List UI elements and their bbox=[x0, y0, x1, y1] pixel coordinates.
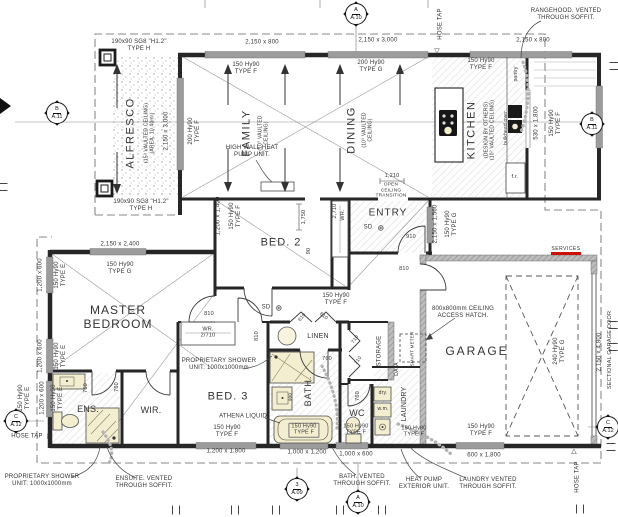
sink-icon bbox=[444, 127, 452, 135]
plan-label: ATHENA LIQUID bbox=[219, 414, 267, 421]
plan-label: 150 Hy90 TYPE F bbox=[213, 425, 240, 439]
section-marker-bubble: BA.11 bbox=[46, 102, 68, 124]
section-marker: BA.11 bbox=[44, 100, 70, 126]
oven-sink-icon bbox=[512, 124, 518, 130]
room-label-laundry: LAUNDRY bbox=[401, 387, 409, 422]
match-line-tick bbox=[231, 506, 239, 515]
section-marker-bubble: AA.10 bbox=[345, 3, 367, 25]
plan-label: 2,150 x 2,400 bbox=[101, 242, 140, 249]
plan-label: 1,200 x 600 bbox=[38, 339, 45, 373]
plan-label: HEAT PUMP EXTERIOR UNIT. bbox=[399, 477, 449, 491]
match-line-tick bbox=[336, 506, 344, 515]
plan-label: 1,750 bbox=[301, 210, 307, 225]
plan-label: 150 Hy90 TYPE G bbox=[106, 262, 133, 276]
plan-label: 1,000 x 600 bbox=[339, 452, 373, 459]
plan-label: pantry bbox=[514, 66, 520, 81]
plan-label: 760 bbox=[114, 382, 120, 392]
plan-label: ▽ bbox=[434, 48, 440, 56]
plan-label: 1,200 x 600 bbox=[40, 381, 47, 415]
plan-label: 150 Hy90 TYPE F bbox=[343, 424, 368, 437]
match-line-tick bbox=[607, 443, 616, 451]
plan-label: RANGEHOOD. VENTED THROUGH SOFFIT. bbox=[531, 8, 601, 22]
plan-label: 150 Hy90 TYPE E bbox=[54, 342, 68, 369]
plan-label: 200 Hy90 TYPE G bbox=[357, 60, 384, 74]
match-line-tick bbox=[576, 505, 584, 514]
plan-label: HOSE TAP bbox=[575, 461, 582, 492]
plan-label: (10° VAULTED CEILING) bbox=[362, 112, 374, 147]
plan-label: 150 Hy90 TYPE E bbox=[51, 384, 65, 411]
plan-label: 810 bbox=[204, 311, 214, 317]
match-line-tick bbox=[610, 62, 618, 70]
plan-label: SMART METER bbox=[409, 332, 414, 367]
match-line-tick bbox=[609, 321, 618, 329]
section-marker: CA.12 bbox=[3, 408, 29, 434]
section-marker: AA.10 bbox=[343, 1, 369, 27]
plan-label: 150 Hy90 TYPE F bbox=[549, 109, 563, 136]
room-label-wir: WIR. bbox=[141, 405, 162, 415]
linen-basket-icon bbox=[278, 327, 296, 345]
match-line-tick bbox=[0, 183, 8, 191]
plan-label: 190x90 SG8 "H1.2" TYPE H bbox=[113, 199, 168, 213]
plan-label: 150 Hy90 TYPE F bbox=[288, 423, 319, 438]
plan-label: 760 bbox=[355, 391, 361, 401]
plan-label: 90 bbox=[306, 248, 312, 255]
plan-label: HOSE TAP bbox=[438, 8, 445, 39]
room-label-linen: LINEN bbox=[307, 333, 329, 341]
room-label-wc: WC bbox=[349, 408, 364, 418]
plan-label: 2,710 bbox=[332, 204, 338, 219]
room-label-dining: DINING bbox=[346, 106, 359, 154]
section-arrow-fragment bbox=[0, 98, 11, 114]
plan-label: 530 x 1,800 bbox=[534, 106, 541, 140]
plan-label: (DESIGN BY OTHERS) (10° VAULTED CEILING) bbox=[484, 100, 496, 160]
section-marker-bubble: BA.11 bbox=[581, 113, 603, 135]
plan-label: OPEN CEILING TRANSITION bbox=[375, 183, 406, 200]
room-label-ens: ENS. bbox=[77, 404, 99, 414]
floorplan-page: 190x90 SG8 "H1.2" TYPE H2,150 x 8002,150… bbox=[0, 0, 618, 517]
section-marker-bubble: 3A.09 bbox=[286, 478, 308, 500]
plan-label: 810 bbox=[254, 331, 260, 341]
match-line-tick bbox=[272, 506, 280, 515]
plan-label: 800x800mm CEILING ACCESS HATCH. bbox=[432, 306, 494, 320]
oven-icon bbox=[508, 105, 522, 118]
plan-label: 2,150 x 800 bbox=[516, 38, 550, 45]
room-label-bath: BATH. bbox=[303, 376, 313, 407]
plan-label: 150 Hy90 TYPE F bbox=[467, 424, 494, 438]
plan-label: 1,000 x 1,200 bbox=[288, 450, 327, 457]
plan-label: 200 Hy90 TYPE F bbox=[188, 117, 202, 144]
plan-label: HOSE TAP bbox=[11, 434, 42, 441]
room-label-storage: STORAGE bbox=[377, 336, 384, 367]
plan-label: 1,200 x 600 bbox=[38, 258, 45, 292]
plan-label: 2,150 x 800 bbox=[245, 40, 279, 47]
plan-label: ⊛ bbox=[378, 223, 385, 232]
plan-label: 150 Hy90 TYPE G bbox=[445, 210, 459, 237]
plan-label: 150 Hy90 TYPE F bbox=[322, 293, 349, 307]
section-marker: 3A.09 bbox=[284, 476, 310, 502]
plan-label: WR. 2/710 bbox=[201, 327, 216, 340]
section-marker: BA.11 bbox=[579, 111, 605, 137]
plan-label: 1,200 x 1,800 bbox=[207, 449, 246, 456]
plan-label: HIGH WALL HEAT PUMP UNIT. bbox=[226, 145, 279, 159]
plan-label: dry. bbox=[379, 391, 388, 397]
plan-label: 600 x 1,800 bbox=[467, 453, 501, 460]
plan-label: 1,210 bbox=[385, 173, 400, 179]
room-label-kitchen: KITCHEN bbox=[466, 101, 479, 160]
match-line-tick bbox=[378, 506, 386, 515]
plan-label: 240 Hy90 TYPE G bbox=[553, 337, 567, 364]
plan-label: 2,150 x 3,000 bbox=[359, 38, 398, 45]
plan-label: 1,200 x 1,400 bbox=[216, 197, 223, 236]
plan-label: △ bbox=[571, 448, 577, 456]
plan-label: (15° VAULTED CEILING) (AREA: 10.40m²) bbox=[144, 103, 156, 163]
match-line-tick bbox=[609, 343, 618, 351]
plan-label: 2,150 x 1,560 bbox=[433, 205, 440, 244]
plan-label: 190x90 SG8 "H1.2" TYPE H bbox=[111, 39, 166, 53]
garage-door-zone bbox=[506, 276, 578, 436]
section-marker-bubble: CA.12 bbox=[597, 416, 618, 438]
plan-label: SERVICES bbox=[551, 247, 580, 253]
plan-label: f.r. bbox=[512, 174, 519, 180]
section-marker-bubble: CA.12 bbox=[5, 410, 27, 432]
plan-label: 150 Hy90 TYPE F bbox=[229, 202, 243, 229]
plan-label: 2,150 x 3,000 bbox=[164, 112, 171, 151]
section-marker: CA.12 bbox=[595, 414, 618, 440]
room-label-bed2: BED. 2 bbox=[261, 237, 302, 250]
plan-label: 760 bbox=[83, 383, 89, 393]
room-label-master-bedroom: MASTER BEDROOM bbox=[83, 304, 152, 332]
plan-label: DATA bbox=[395, 362, 401, 375]
section-marker: AA.10 bbox=[345, 489, 371, 515]
plan-label: LAUNDRY VENTED THROUGH SOFFIT. bbox=[459, 477, 516, 491]
plan-label: 150 Hy90 TYPE F bbox=[401, 426, 426, 439]
plan-label: SD bbox=[364, 225, 373, 232]
plan-label: 760 bbox=[322, 356, 332, 362]
plan-label: PROPRIETARY SHOWER UNIT: 1000x1000mm bbox=[5, 474, 80, 488]
plan-label: bulkhead over bbox=[504, 111, 510, 145]
room-label-entry: ENTRY bbox=[369, 207, 408, 219]
plan-label: ENSUITE. VENTED THROUGH SOFFIT. bbox=[115, 476, 172, 490]
plan-label: BATH. VENTED THROUGH SOFFIT. bbox=[333, 474, 390, 488]
plan-label: 150 Hy90 TYPE E bbox=[54, 261, 68, 288]
plan-label: 910 bbox=[406, 234, 416, 240]
plan-label: WR. bbox=[340, 209, 346, 220]
plan-label: PROPRIETARY SHOWER UNIT: 1000x1000mm bbox=[182, 358, 257, 372]
floorplan-drawing bbox=[0, 0, 618, 517]
sectional-door-lines bbox=[592, 274, 596, 436]
section-marker-bubble: AA.10 bbox=[347, 491, 369, 513]
plan-label: ▷ bbox=[47, 433, 53, 441]
plan-label: SD bbox=[262, 305, 271, 312]
room-label-alfresco: ALFRESCO bbox=[125, 97, 138, 168]
match-line-tick bbox=[172, 506, 180, 515]
plan-label: 2,150 x 4,800 bbox=[597, 333, 604, 372]
plan-label: ⊛ bbox=[276, 303, 283, 312]
plan-label: 810 bbox=[399, 266, 409, 272]
room-label-garage: GARAGE bbox=[445, 345, 508, 359]
pantry-shelves bbox=[534, 62, 596, 86]
plan-label: 150 Hy90 TYPE F bbox=[232, 62, 259, 76]
room-label-bed3: BED. 3 bbox=[208, 391, 249, 404]
plan-label: 150 Hy90 TYPE F bbox=[467, 58, 494, 72]
plan-label: 900 bbox=[287, 393, 292, 401]
plan-label: w.m. bbox=[377, 407, 388, 413]
